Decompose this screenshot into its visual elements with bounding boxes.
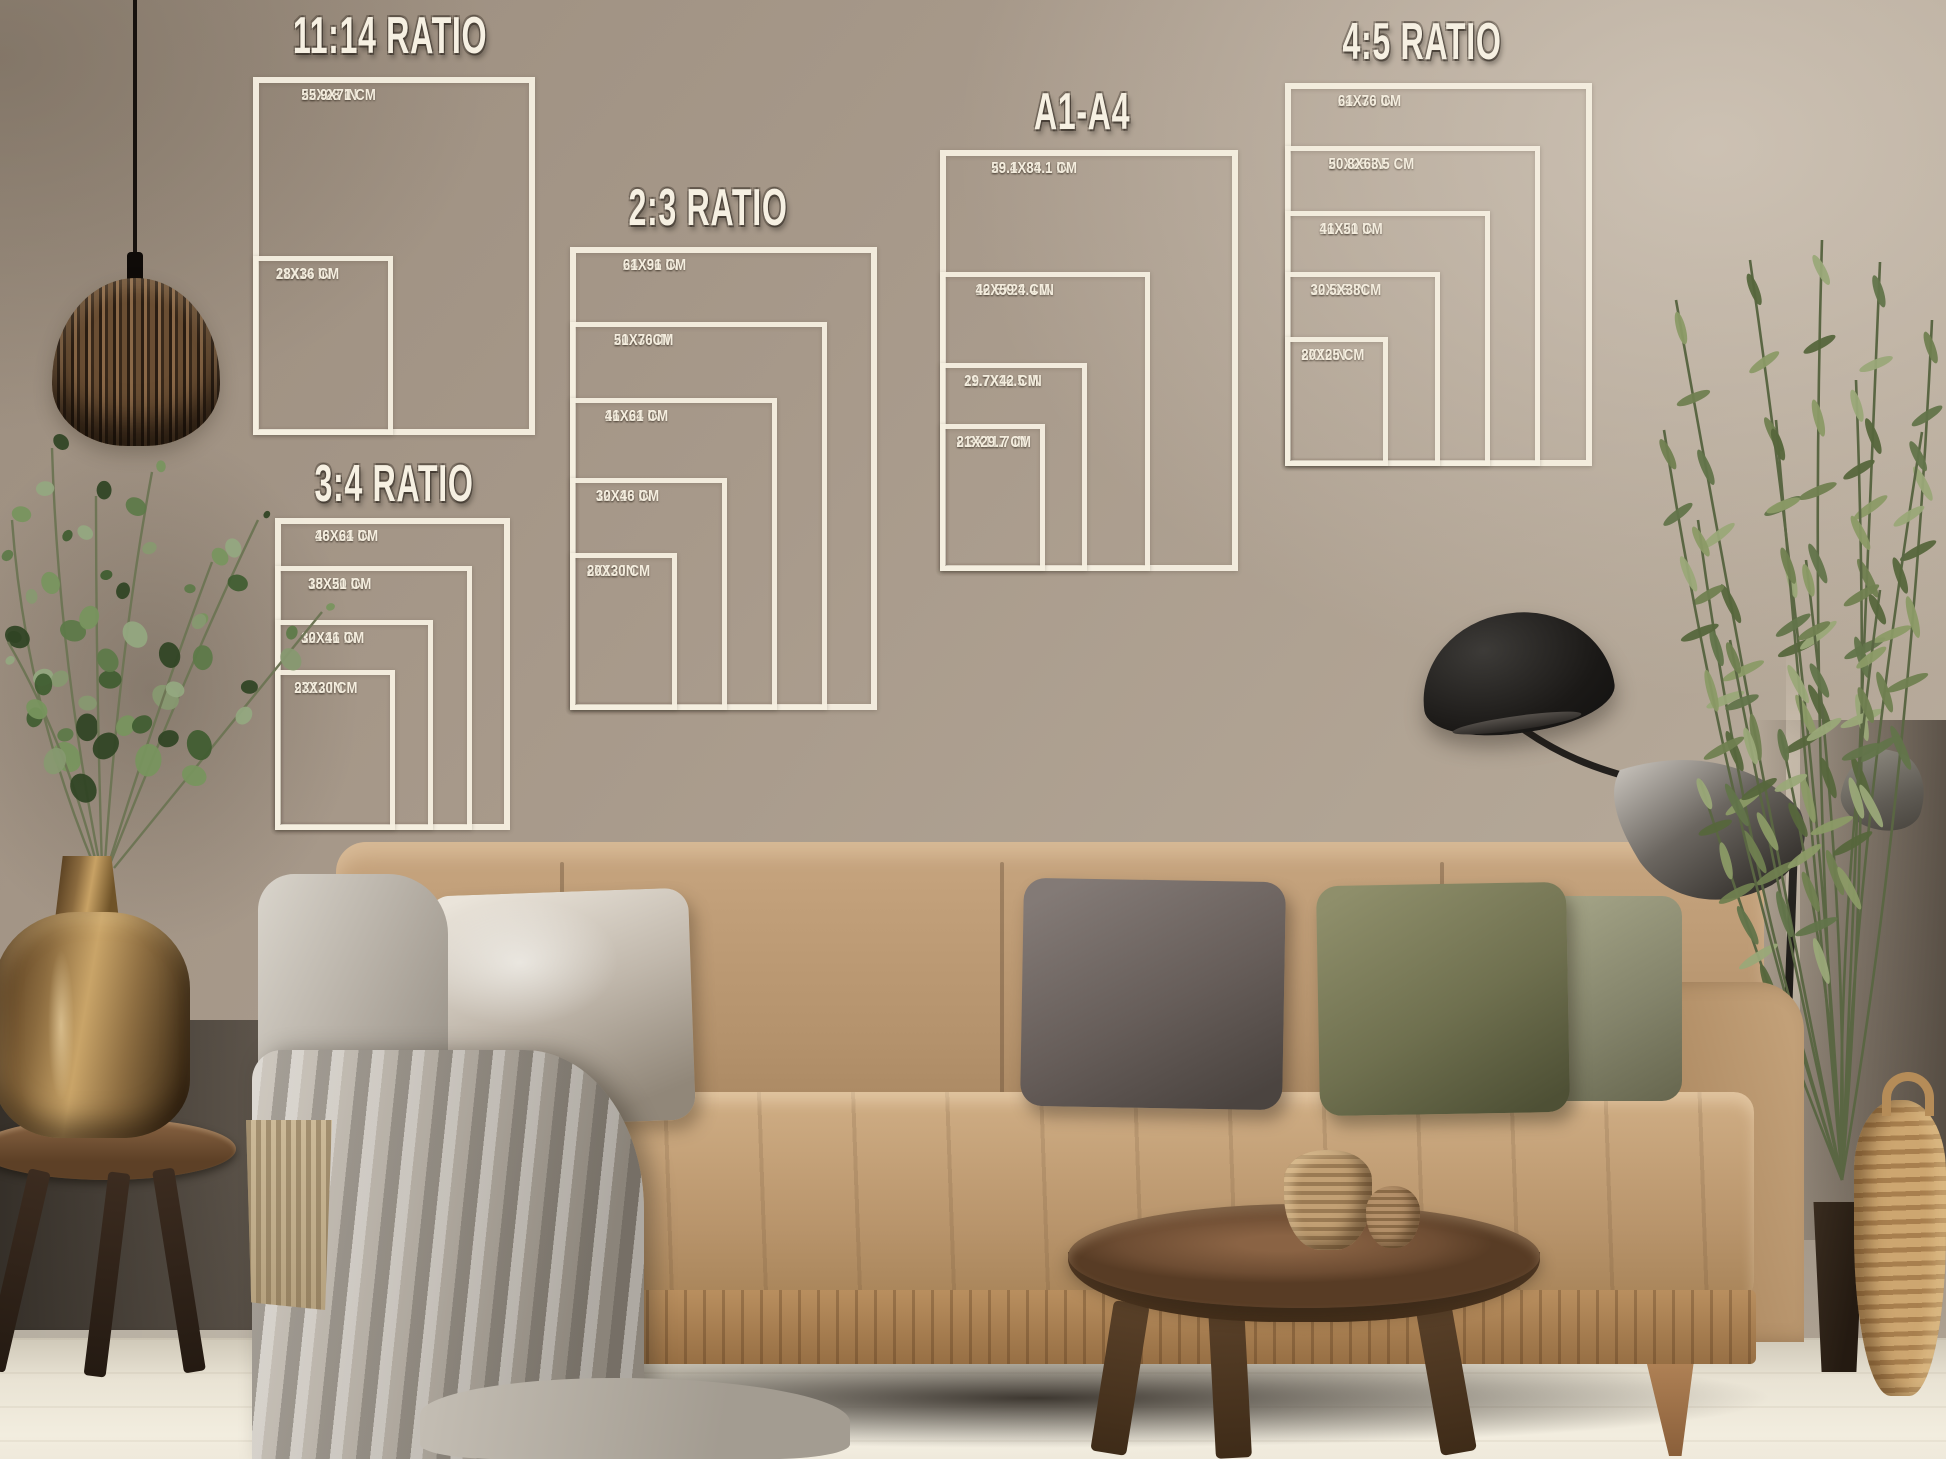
size-cm: 29.7X42 CM (964, 373, 1039, 392)
rope-vase-small (1366, 1186, 1420, 1248)
size-cm: 42X59.4 CM (975, 282, 1050, 301)
size-cm: 50.8X63.5 CM (1329, 156, 1415, 175)
chart-title-a1-a4: A1-A4 (1034, 82, 1130, 142)
beige-throw-fringe (246, 1120, 332, 1310)
size-cm: 28X36 CM (276, 266, 339, 285)
size-cm: 21X29.7 CM (957, 434, 1032, 453)
size-cm: 61X91 CM (623, 257, 686, 276)
living-room-poster-size-guide: 11:14 RATIO22X28 IN55.9X71 CM11X14 IN28X… (0, 0, 1946, 1459)
chart-title-11-14: 11:14 RATIO (293, 6, 487, 66)
size-cm: 41X51 CM (1320, 221, 1383, 240)
pendant-lamp-cord (133, 0, 137, 258)
chart-title-4-5: 4:5 RATIO (1342, 12, 1501, 72)
wicker-basket-handle (1882, 1072, 1934, 1116)
wicker-basket (1854, 1100, 1946, 1396)
couch-seam (1000, 862, 1004, 1112)
size-cm: 61X76 CM (1338, 93, 1401, 112)
eucalyptus-plant (0, 400, 360, 880)
pillow-olive (1316, 882, 1570, 1116)
gold-vase-neck (55, 856, 119, 920)
size-cm: 30X46 CM (596, 488, 659, 507)
size-cm: 20X25 CM (1301, 347, 1364, 366)
chart-title-2-3: 2:3 RATIO (628, 178, 787, 238)
size-cm: 41X61 CM (605, 408, 668, 427)
rope-vase-large (1284, 1150, 1372, 1250)
size-cm: 51X76CM (614, 332, 674, 351)
gold-vase-highlight (48, 950, 74, 1100)
size-cm: 20X30 CM (587, 563, 650, 582)
size-cm: 30.5X38CM (1311, 282, 1382, 301)
size-cm: 55.9X71 CM (301, 87, 376, 106)
pillow-grey (1020, 878, 1286, 1111)
gold-vase (0, 912, 190, 1138)
size-cm: 59.1X84.1 CM (991, 160, 1077, 179)
